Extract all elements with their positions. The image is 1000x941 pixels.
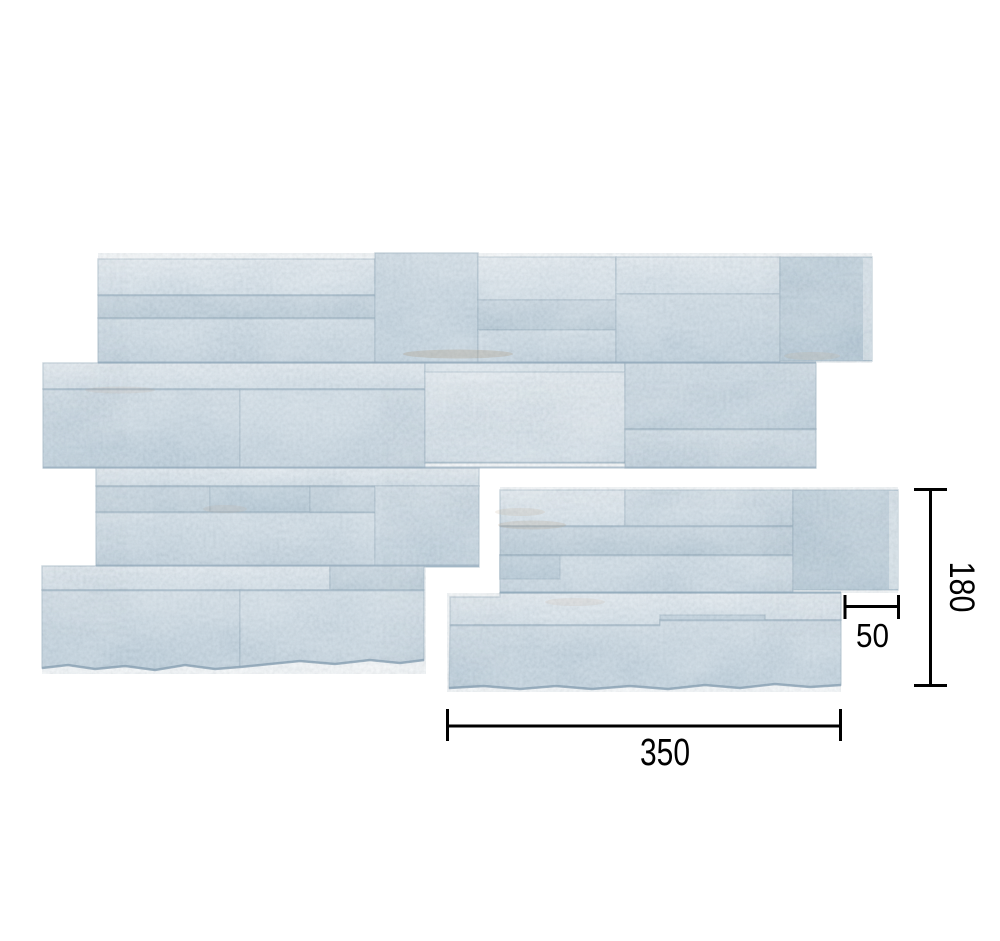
svg-text:180: 180 xyxy=(942,562,981,613)
svg-text:50: 50 xyxy=(856,617,889,654)
svg-text:350: 350 xyxy=(640,732,690,774)
